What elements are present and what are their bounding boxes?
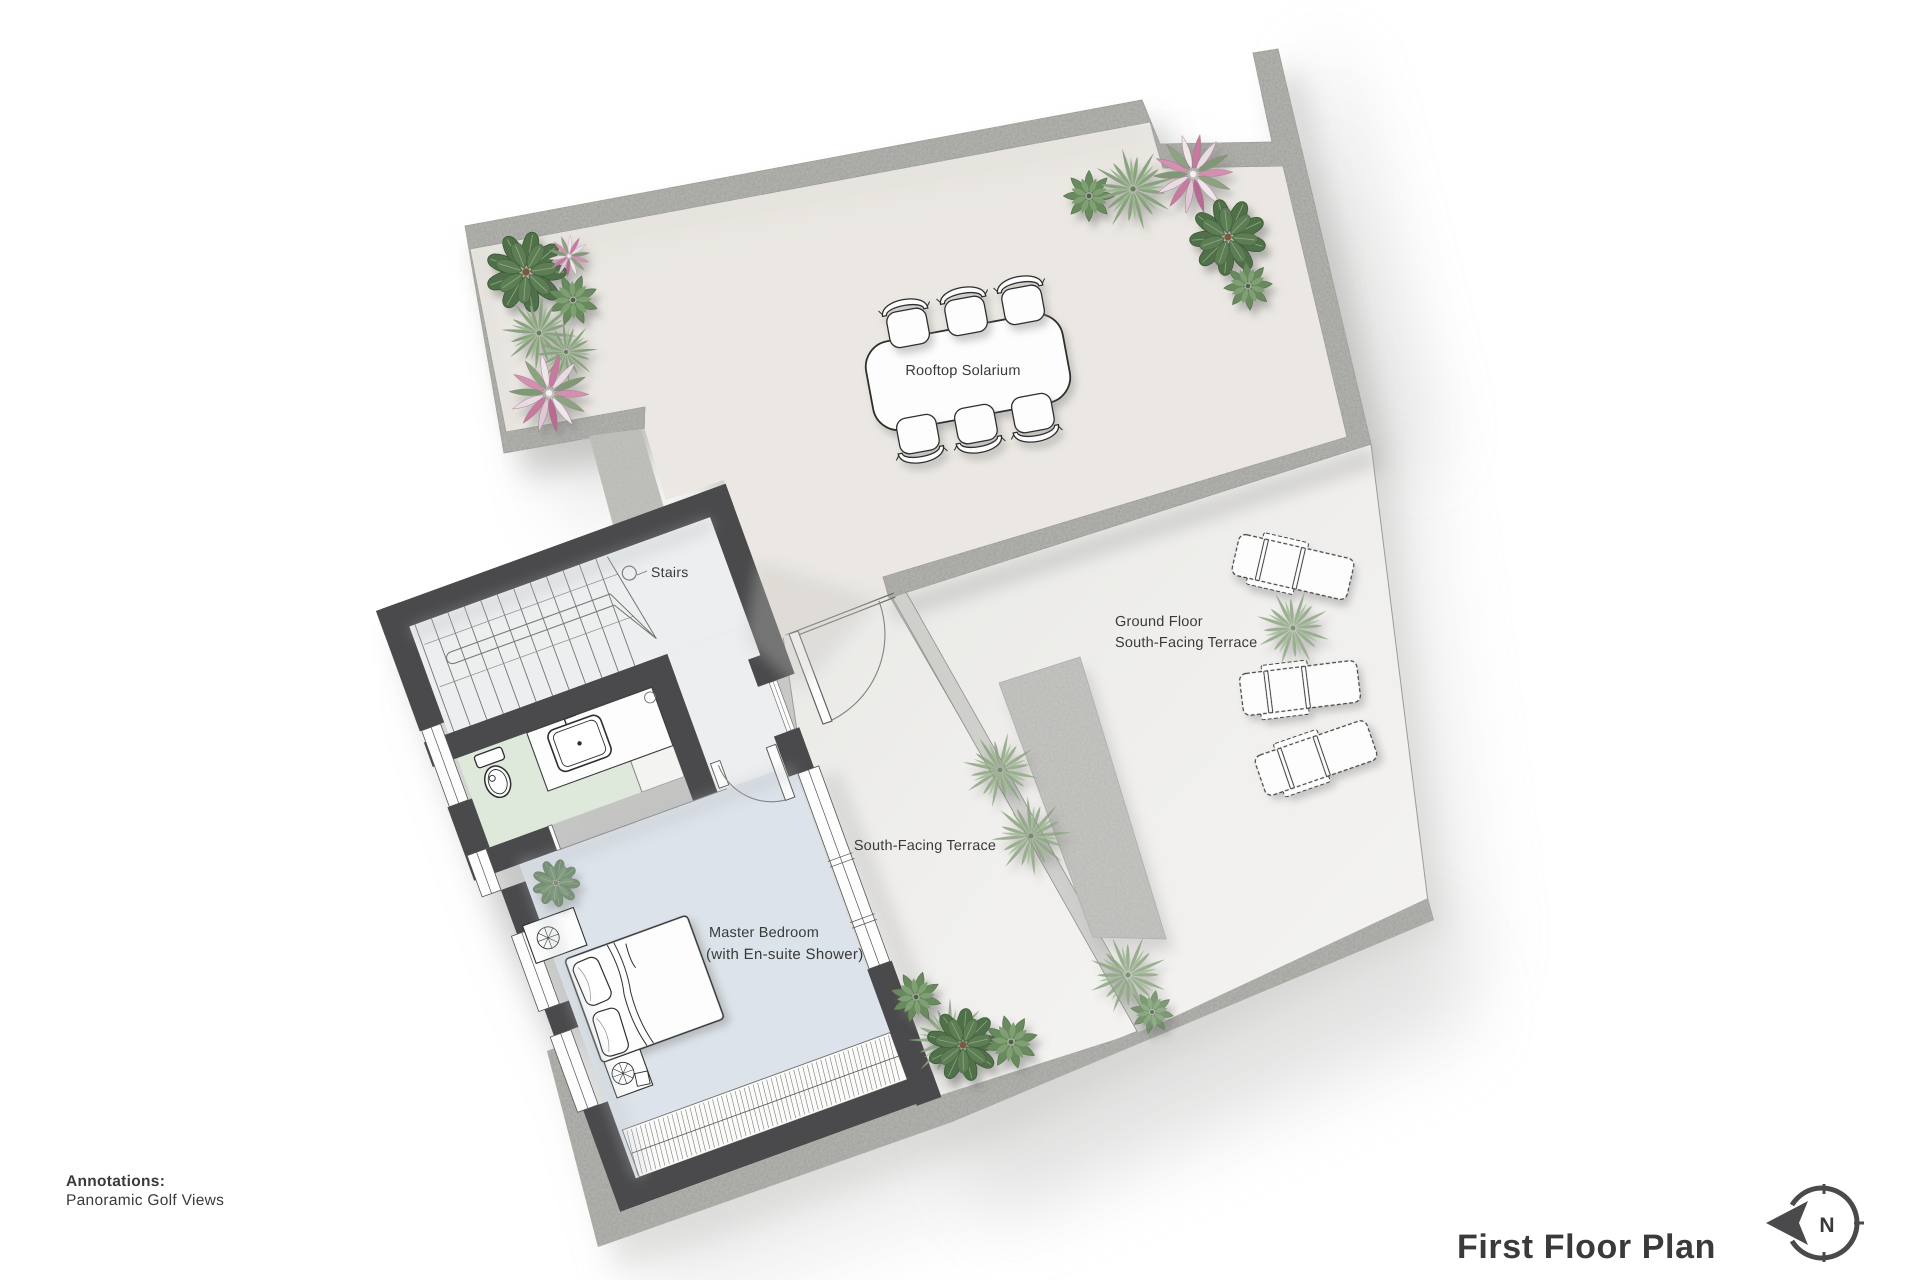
svg-text:Ground Floor: Ground Floor [1115,614,1203,630]
svg-text:Master Bedroom: Master Bedroom [709,925,819,941]
svg-text:Rooftop Solarium: Rooftop Solarium [905,363,1020,379]
svg-text:South-Facing Terrace: South-Facing Terrace [854,838,996,854]
svg-text:(with En-suite Shower): (with En-suite Shower) [706,946,864,963]
svg-text:N: N [1819,1214,1834,1237]
svg-text:Stairs: Stairs [651,564,689,580]
svg-text:First Floor Plan: First Floor Plan [1457,1228,1716,1266]
svg-text:Annotations:: Annotations: [66,1173,165,1190]
svg-text:South-Facing Terrace: South-Facing Terrace [1115,635,1257,651]
svg-text:Panoramic Golf Views: Panoramic Golf Views [66,1192,224,1209]
